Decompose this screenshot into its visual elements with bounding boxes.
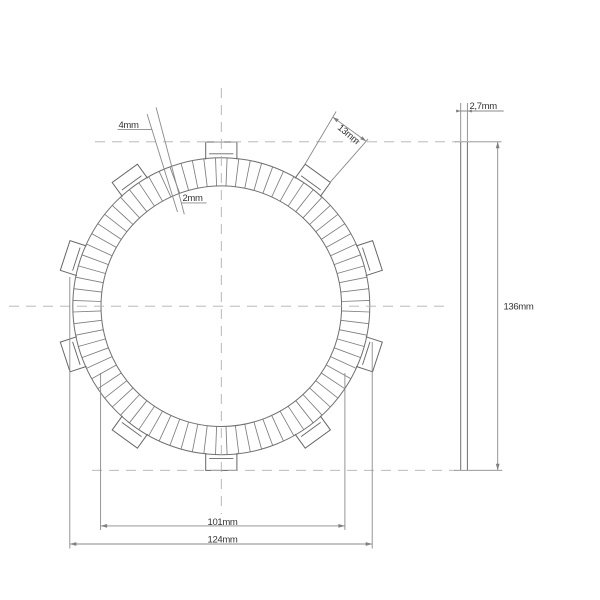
svg-text:101mm: 101mm: [208, 517, 238, 528]
svg-text:2,7mm: 2,7mm: [470, 101, 498, 112]
svg-text:124mm: 124mm: [208, 534, 238, 545]
svg-text:136mm: 136mm: [504, 301, 534, 312]
